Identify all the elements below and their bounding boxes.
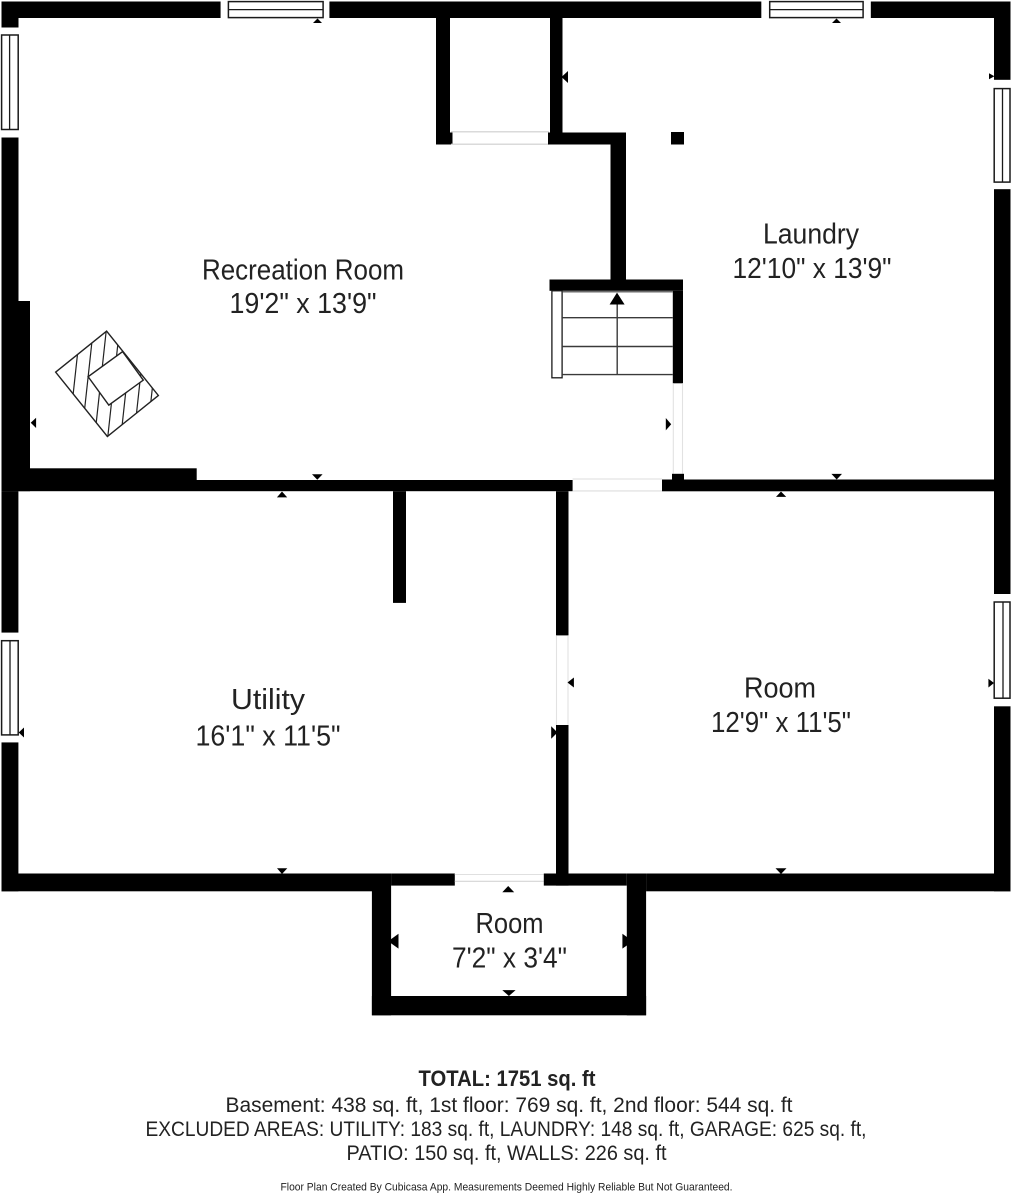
svg-text:Basement: 438 sq. ft, 1st floo: Basement: 438 sq. ft, 1st floor: 769 sq.… — [226, 1093, 793, 1117]
svg-text:12'10" x 13'9": 12'10" x 13'9" — [733, 253, 892, 285]
svg-text:7'2" x 3'4": 7'2" x 3'4" — [452, 943, 567, 975]
svg-text:PATIO: 150 sq. ft, WALLS: 226: PATIO: 150 sq. ft, WALLS: 226 sq. ft — [347, 1141, 667, 1165]
svg-text:TOTAL: 1751 sq. ft: TOTAL: 1751 sq. ft — [419, 1066, 597, 1091]
svg-text:Laundry: Laundry — [763, 219, 859, 251]
svg-text:EXCLUDED AREAS: UTILITY: 183 s: EXCLUDED AREAS: UTILITY: 183 sq. ft, LAU… — [146, 1117, 867, 1141]
svg-text:Floor Plan Created By Cubicasa: Floor Plan Created By Cubicasa App. Meas… — [281, 1182, 733, 1194]
svg-text:Room: Room — [476, 908, 544, 940]
svg-text:16'1" x 11'5": 16'1" x 11'5" — [196, 721, 341, 753]
svg-text:19'2" x 13'9": 19'2" x 13'9" — [230, 288, 377, 320]
svg-text:Utility: Utility — [231, 684, 306, 716]
svg-text:Room: Room — [744, 673, 816, 705]
svg-text:12'9" x 11'5": 12'9" x 11'5" — [711, 707, 851, 739]
svg-text:Recreation Room: Recreation Room — [202, 255, 404, 287]
